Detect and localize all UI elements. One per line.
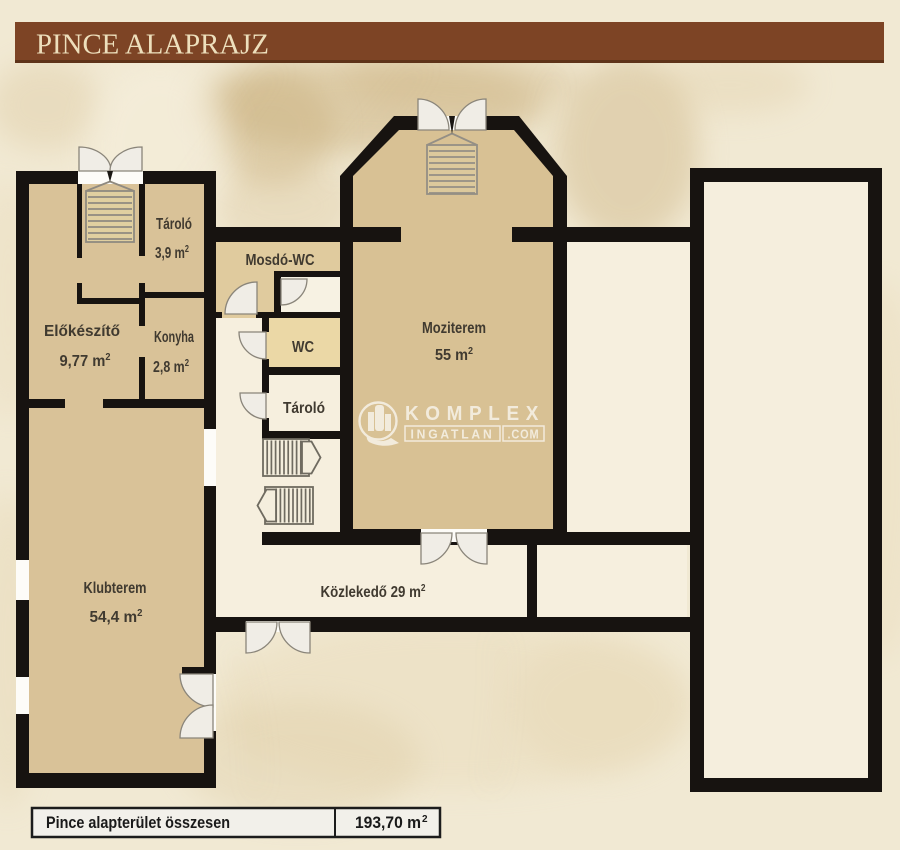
svg-text:.COM: .COM	[508, 427, 540, 442]
svg-text:Közlekedő 29 m2: Közlekedő 29 m2	[321, 583, 426, 601]
svg-text:3,9 m2: 3,9 m2	[155, 244, 189, 262]
svg-text:55 m2: 55 m2	[435, 346, 473, 364]
svg-text:Pince alapterület összesen: Pince alapterület összesen	[46, 814, 230, 832]
svg-text:Tároló: Tároló	[283, 400, 325, 417]
svg-text:2,8 m2: 2,8 m2	[153, 358, 189, 376]
svg-text:2: 2	[422, 814, 428, 825]
svg-text:Tároló: Tároló	[156, 216, 192, 233]
svg-text:WC: WC	[292, 339, 314, 356]
svg-text:PINCE ALAPRAJZ: PINCE ALAPRAJZ	[36, 29, 269, 61]
svg-text:54,4 m2: 54,4 m2	[90, 608, 143, 626]
svg-text:Konyha: Konyha	[154, 329, 194, 346]
svg-text:INGATLAN: INGATLAN	[411, 427, 495, 442]
svg-text:Moziterem: Moziterem	[422, 320, 486, 337]
svg-text:Előkészítő: Előkészítő	[44, 323, 120, 340]
svg-text:9,77 m2: 9,77 m2	[59, 352, 110, 370]
svg-text:193,70 m: 193,70 m	[355, 814, 421, 832]
svg-text:Klubterem: Klubterem	[84, 580, 147, 597]
svg-text:Mosdó-WC: Mosdó-WC	[246, 252, 315, 269]
svg-text:KOMPLEX: KOMPLEX	[405, 403, 545, 425]
